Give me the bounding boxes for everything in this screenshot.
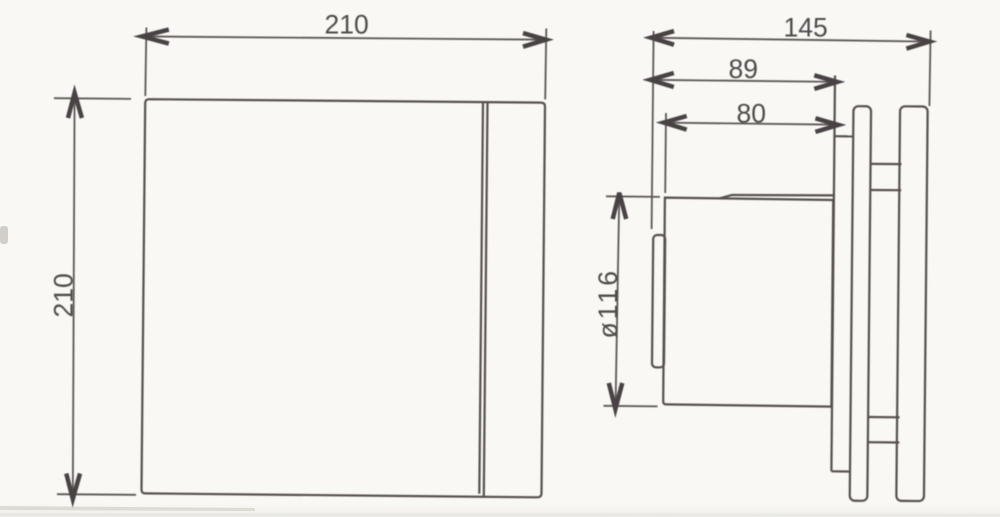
svg-text:80: 80 bbox=[737, 99, 766, 129]
svg-text:210: 210 bbox=[49, 273, 79, 317]
svg-text:210: 210 bbox=[325, 10, 369, 40]
svg-text:ø116: ø116 bbox=[593, 268, 623, 338]
svg-text:145: 145 bbox=[784, 13, 828, 43]
svg-text:89: 89 bbox=[729, 54, 758, 84]
